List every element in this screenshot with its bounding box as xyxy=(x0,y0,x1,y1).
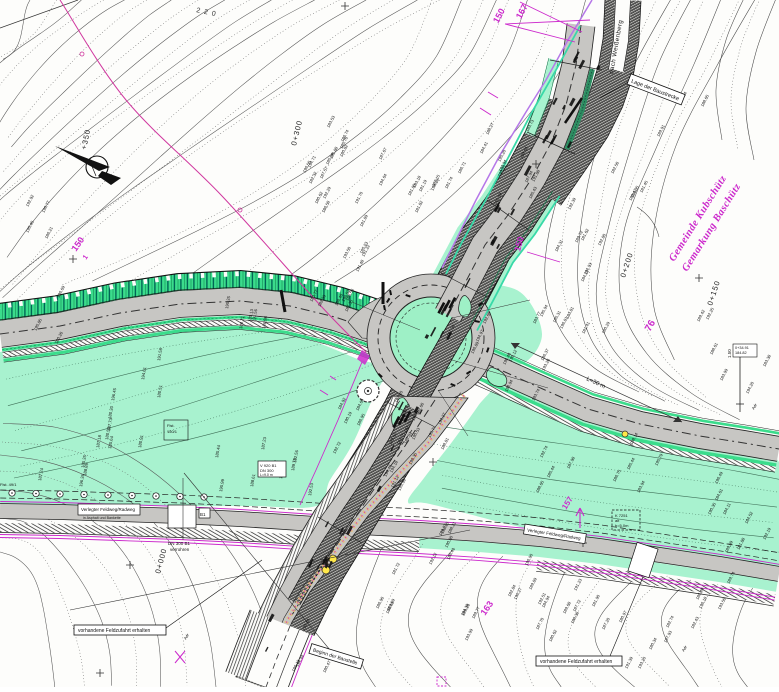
svg-text:vorhandene Feldzufahrt erhalte: vorhandene Feldzufahrt erhalten xyxy=(78,628,150,634)
svg-text:184.82: 184.82 xyxy=(735,351,747,355)
svg-text:150/1: 150/1 xyxy=(167,429,178,434)
svg-text:vorhandene Feldzufahrt erhalte: vorhandene Feldzufahrt erhalten xyxy=(540,659,612,665)
svg-text:Flst. 49/1: Flst. 49/1 xyxy=(0,482,17,487)
svg-text:B1: B1 xyxy=(200,512,206,517)
svg-text:Verlegter Feldweg/Radweg: Verlegter Feldweg/Radweg xyxy=(81,507,136,512)
svg-text:b=5.0m: b=5.0m xyxy=(615,523,629,528)
svg-text:in Asphalt und Bankette: in Asphalt und Bankette xyxy=(83,516,121,520)
svg-text:DN 300 B1: DN 300 B1 xyxy=(168,541,191,546)
svg-text:Flst.: Flst. xyxy=(167,423,175,428)
svg-text:0+34.91: 0+34.91 xyxy=(735,346,749,350)
svg-text:1.50: 1.50 xyxy=(727,349,732,358)
svg-text:verrohren: verrohren xyxy=(170,547,190,552)
svg-text:L=9.0 m: L=9.0 m xyxy=(260,473,273,477)
